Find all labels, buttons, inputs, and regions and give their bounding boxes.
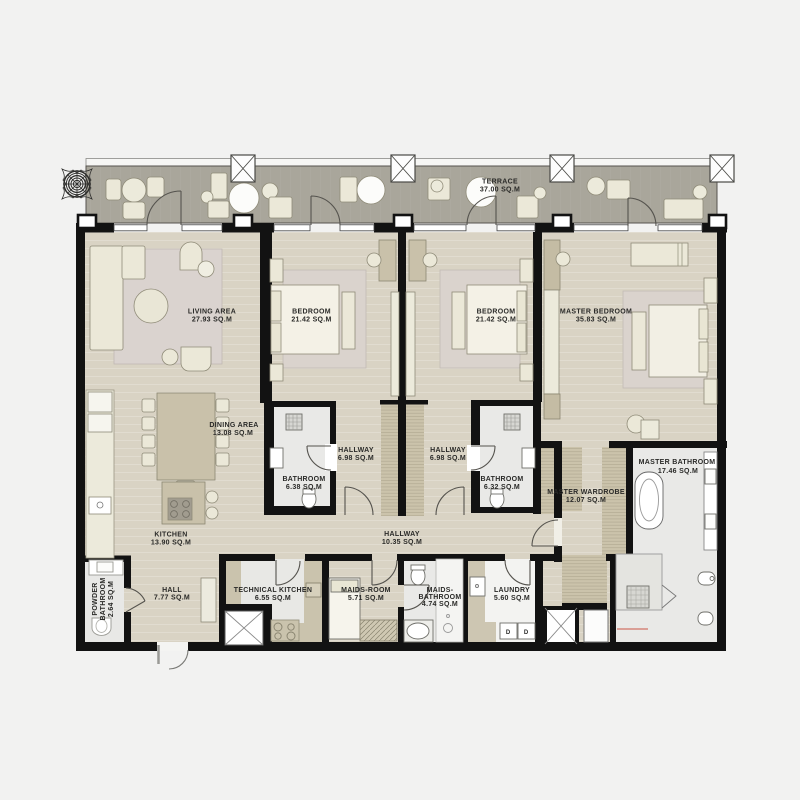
svg-text:MASTER BATHROOM: MASTER BATHROOM [639, 459, 716, 466]
svg-text:10.35 SQ.M: 10.35 SQ.M [382, 539, 422, 546]
svg-text:5.60 SQ.M: 5.60 SQ.M [494, 595, 530, 602]
svg-text:4.74 SQ.M: 4.74 SQ.M [422, 601, 458, 608]
svg-text:BEDROOM: BEDROOM [477, 309, 516, 316]
svg-text:DINING AREA: DINING AREA [209, 422, 258, 429]
svg-text:6.98 SQ.M: 6.98 SQ.M [338, 455, 374, 462]
svg-text:MASTER BEDROOM: MASTER BEDROOM [560, 309, 632, 316]
svg-text:6.32 SQ.M: 6.32 SQ.M [484, 484, 520, 491]
svg-text:13.08 SQ.M: 13.08 SQ.M [213, 430, 253, 437]
svg-text:LIVING AREA: LIVING AREA [188, 309, 236, 316]
svg-text:MAIDS-: MAIDS- [427, 587, 454, 594]
svg-text:KITCHEN: KITCHEN [154, 532, 187, 539]
svg-text:POWDER: POWDER [92, 582, 99, 615]
svg-text:6.55 SQ.M: 6.55 SQ.M [255, 595, 291, 602]
svg-text:D: D [524, 630, 529, 636]
svg-text:35.83 SQ.M: 35.83 SQ.M [576, 317, 616, 324]
svg-text:LAUNDRY: LAUNDRY [494, 587, 530, 594]
svg-text:21.42 SQ.M: 21.42 SQ.M [476, 317, 516, 324]
svg-text:HALL: HALL [162, 587, 182, 594]
svg-text:MASTER WARDROBE: MASTER WARDROBE [547, 489, 625, 496]
svg-text:HALLWAY: HALLWAY [338, 447, 374, 454]
svg-text:21.42 SQ.M: 21.42 SQ.M [291, 317, 331, 324]
svg-text:TECHNICAL KITCHEN: TECHNICAL KITCHEN [234, 587, 312, 594]
svg-text:BATHROOM: BATHROOM [480, 476, 523, 483]
svg-text:BATHROOM: BATHROOM [100, 577, 107, 620]
svg-text:TERRACE: TERRACE [482, 179, 518, 186]
svg-text:BATHROOM: BATHROOM [282, 476, 325, 483]
svg-text:BEDROOM: BEDROOM [292, 309, 331, 316]
svg-text:D: D [506, 630, 511, 636]
svg-text:2.64 SQ.M: 2.64 SQ.M [108, 581, 115, 617]
svg-text:27.93 SQ.M: 27.93 SQ.M [192, 317, 232, 324]
svg-text:37.00 SQ.M: 37.00 SQ.M [480, 187, 520, 194]
svg-text:5.71 SQ.M: 5.71 SQ.M [348, 595, 384, 602]
svg-text:17.46 SQ.M: 17.46 SQ.M [658, 468, 698, 475]
svg-text:BATHROOM: BATHROOM [418, 594, 461, 601]
svg-text:7.77 SQ.M: 7.77 SQ.M [154, 595, 190, 602]
svg-text:HALLWAY: HALLWAY [430, 447, 466, 454]
svg-text:6.38 SQ.M: 6.38 SQ.M [286, 484, 322, 491]
svg-text:12.07 SQ.M: 12.07 SQ.M [566, 497, 606, 504]
svg-text:13.90 SQ.M: 13.90 SQ.M [151, 540, 191, 547]
svg-text:6.98 SQ.M: 6.98 SQ.M [430, 455, 466, 462]
svg-text:MAIDS-ROOM: MAIDS-ROOM [341, 587, 391, 594]
svg-text:HALLWAY: HALLWAY [384, 531, 420, 538]
